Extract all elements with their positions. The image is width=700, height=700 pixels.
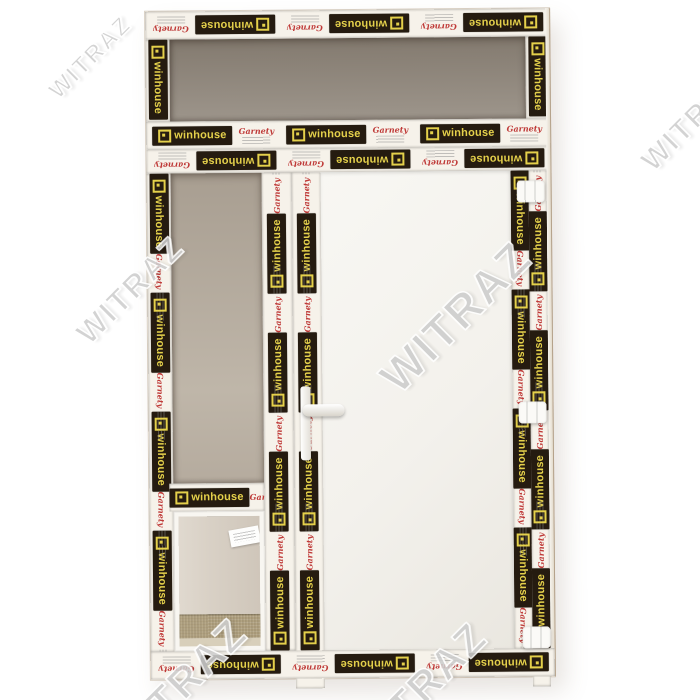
tape-segment: winhouse Garnety — [265, 531, 296, 650]
winhouse-badge: winhouse — [269, 451, 289, 531]
winhouse-label: winhouse — [274, 576, 286, 628]
tape-microtext-lines — [297, 656, 325, 663]
winhouse-logo-icon — [257, 154, 270, 167]
winhouse-badge: winhouse — [464, 149, 544, 169]
garnety-label: Garnety — [421, 24, 457, 32]
winhouse-logo-icon — [175, 491, 188, 504]
tape-segment: winhouse Garnety — [149, 412, 174, 531]
tape-gap: Garnety — [154, 153, 190, 170]
tape-gap: Garnety — [293, 656, 329, 673]
winhouse-label: winhouse — [152, 62, 164, 114]
tape-segment: winhouse Garnety — [169, 483, 264, 512]
winhouse-label: winhouse — [532, 58, 544, 110]
tape-segment: winhouse Garnety — [280, 119, 414, 148]
witraz-watermark: WITRAZ — [635, 63, 700, 178]
winhouse-logo-icon — [530, 656, 543, 669]
garnety-label: Garnety — [157, 492, 165, 528]
winhouse-label: winhouse — [515, 311, 527, 363]
tape-microtext-lines — [425, 15, 453, 22]
winhouse-label: winhouse — [340, 658, 392, 670]
winhouse-badge: winhouse — [530, 449, 550, 529]
winhouse-logo-icon — [390, 17, 403, 30]
winhouse-logo-icon — [531, 42, 544, 55]
winhouse-badge: winhouse — [330, 150, 410, 170]
garnety-label: Garnety — [303, 297, 311, 333]
garnety-label: Garnety — [276, 535, 284, 571]
tape-segment: winhouse Garnety — [146, 121, 280, 150]
winhouse-logo-icon — [256, 18, 269, 31]
winhouse-logo-icon — [534, 510, 547, 523]
protective-tape-transom-bottom: winhouse Garnety winhouse Garnety winhou… — [146, 118, 550, 150]
door-window-unit: winhouse Garnety winhouse Garnety winhou… — [145, 8, 555, 680]
tape-microtext-lines — [292, 152, 320, 159]
transom-glass — [169, 36, 526, 121]
winhouse-badge: winhouse — [150, 293, 170, 373]
tape-gap: Garnety — [288, 152, 324, 169]
tape-microtext-lines — [158, 153, 186, 160]
winhouse-logo-icon — [155, 537, 168, 550]
winhouse-badge: winhouse — [511, 289, 531, 369]
protective-tape-transom-left: winhouse — [145, 40, 170, 122]
garnety-label: Garnety — [288, 161, 324, 169]
tape-segment: winhouse Garnety — [263, 293, 294, 412]
garnety-label: Garnety — [293, 665, 329, 673]
winhouse-logo-icon — [262, 658, 275, 671]
winhouse-badge: winhouse — [270, 570, 290, 650]
winhouse-badge: winhouse — [334, 654, 414, 674]
winhouse-logo-icon — [516, 533, 529, 546]
tape-microtext-lines — [426, 151, 454, 158]
tape-microtext-lines — [376, 135, 404, 142]
winhouse-label: winhouse — [469, 16, 521, 28]
winhouse-label: winhouse — [535, 574, 547, 626]
winhouse-logo-icon — [514, 295, 527, 308]
garnety-label: Garnety — [156, 373, 164, 409]
winhouse-badge: winhouse — [529, 330, 549, 410]
tape-gap: Garnety — [422, 151, 458, 168]
product-photo: winhouse Garnety winhouse Garnety winhou… — [0, 0, 700, 700]
tape-segment: winhouse Garnety — [292, 174, 322, 293]
winhouse-badge: winhouse — [169, 487, 249, 507]
winhouse-logo-icon — [154, 418, 167, 431]
winhouse-badge: winhouse — [268, 332, 288, 412]
tape-segment: winhouse Garnety — [531, 410, 550, 529]
winhouse-label: winhouse — [517, 549, 529, 601]
winhouse-logo-icon — [272, 394, 285, 407]
door-handle-lever — [303, 404, 345, 416]
protective-tape-sidelight-mid-rail: winhouse Garnety — [169, 483, 264, 512]
tape-segment: winhouse Garnety — [415, 8, 549, 37]
protective-tape-top-rail: winhouse Garnety winhouse Garnety winhou… — [145, 8, 549, 40]
winhouse-label: winhouse — [534, 455, 546, 507]
tape-microtext-lines — [302, 172, 309, 174]
tape-segment: winhouse Garnety — [148, 293, 173, 412]
tape-segment: winhouse Garnety — [281, 9, 415, 38]
winhouse-badge: winhouse — [148, 40, 168, 120]
garnety-label: Garnety — [507, 124, 543, 132]
garnety-label: Garnety — [373, 125, 409, 133]
winhouse-logo-icon — [271, 275, 284, 288]
tape-gap: Garnety — [158, 611, 167, 652]
winhouse-badge: winhouse — [297, 213, 317, 293]
sidelight-fixed-glass — [171, 173, 265, 484]
winhouse-badge: winhouse — [152, 126, 232, 146]
winhouse-badge: winhouse — [420, 123, 500, 143]
tape-gap: Garnety — [250, 493, 265, 501]
winhouse-logo-icon — [302, 512, 315, 525]
tape-segment: winhouse Garnety — [264, 412, 295, 531]
winhouse-badge: winhouse — [152, 531, 172, 611]
winhouse-logo-icon — [300, 274, 313, 287]
garnety-label: Garnety — [422, 160, 458, 168]
garnety-label: Garnety — [305, 535, 313, 571]
garnety-label: Garnety — [517, 370, 525, 406]
winhouse-label: winhouse — [302, 457, 314, 509]
garnety-label: Garnety — [154, 162, 190, 170]
winhouse-label: winhouse — [273, 457, 285, 509]
tape-gap: Garnety — [302, 172, 311, 213]
door-handle-plate — [300, 386, 311, 460]
winhouse-badge: winhouse — [463, 13, 543, 33]
garnety-label: Garnety — [537, 532, 545, 568]
tape-gap: Garnety — [421, 15, 457, 32]
winhouse-badge: winhouse — [329, 14, 409, 34]
garnety-label: Garnety — [287, 25, 323, 33]
door-hinge-top — [517, 180, 545, 202]
tape-segment: winhouse Garnety — [512, 289, 531, 408]
protective-tape-mullion: winhouse Garnety winhouse Garnety winhou… — [262, 173, 296, 651]
tape-microtext-lines — [291, 16, 319, 23]
winhouse-logo-icon — [391, 153, 404, 166]
garnety-label: Garnety — [250, 493, 265, 501]
winhouse-label: winhouse — [301, 338, 313, 390]
tape-segment: winhouse Garnety — [295, 531, 325, 650]
winhouse-badge: winhouse — [196, 151, 276, 171]
winhouse-logo-icon — [273, 513, 286, 526]
tape-segment: winhouse Garnety — [150, 531, 175, 650]
winhouse-logo-icon — [304, 631, 317, 644]
winhouse-badge: winhouse — [286, 124, 366, 144]
winhouse-label: winhouse — [202, 155, 254, 167]
winhouse-label: winhouse — [156, 553, 168, 605]
winhouse-label: winhouse — [154, 315, 166, 367]
tape-segment: winhouse Garnety — [414, 118, 548, 147]
winhouse-badge: winhouse — [513, 527, 533, 607]
winhouse-label: winhouse — [271, 219, 283, 271]
winhouse-label: winhouse — [174, 129, 226, 141]
tape-gap: Garnety — [153, 17, 189, 34]
tape-segment: winhouse Garnety — [148, 149, 282, 174]
garnety-label: Garnety — [518, 489, 526, 525]
tape-gap: Garnety — [272, 173, 281, 214]
tape-gap: Garnety — [373, 125, 409, 142]
protective-tape-main-top-rail: winhouse Garnety winhouse Garnety winhou… — [146, 146, 550, 174]
winhouse-logo-icon — [153, 299, 166, 312]
winhouse-label: winhouse — [304, 576, 316, 628]
garnety-label: Garnety — [239, 126, 275, 134]
winhouse-logo-icon — [158, 129, 171, 142]
tape-segment: winhouse Garnety — [416, 146, 550, 171]
winhouse-logo-icon — [426, 127, 439, 140]
tape-microtext-lines — [273, 173, 280, 175]
winhouse-logo-icon — [152, 180, 165, 193]
tape-segment: winhouse Garnety — [530, 291, 549, 410]
tape-gap: Garnety — [287, 16, 323, 33]
winhouse-badge: winhouse — [528, 211, 548, 291]
winhouse-label: winhouse — [470, 152, 522, 164]
winhouse-label: winhouse — [442, 127, 494, 139]
garnety-label: Garnety — [273, 178, 281, 214]
tape-segment: winhouse Garnety — [262, 175, 293, 294]
witraz-watermark: WITRAZ — [44, 11, 138, 105]
winhouse-badge: winhouse — [299, 451, 319, 531]
winhouse-badge: winhouse — [267, 213, 287, 293]
winhouse-label: winhouse — [272, 338, 284, 390]
garnety-label: Garnety — [302, 178, 310, 214]
winhouse-label: winhouse — [155, 434, 167, 486]
tape-segment: winhouse Garnety — [147, 11, 281, 40]
winhouse-label: winhouse — [533, 336, 545, 388]
winhouse-badge: winhouse — [300, 570, 320, 650]
tape-segment: winhouse — [145, 40, 170, 120]
winhouse-logo-icon — [524, 16, 537, 29]
door-leaf — [321, 171, 515, 651]
tape-microtext-lines — [157, 17, 185, 24]
winhouse-label: winhouse — [308, 128, 360, 140]
garnety-label: Garnety — [535, 295, 543, 331]
garnety-label: Garnety — [274, 297, 282, 333]
winhouse-label: winhouse — [516, 430, 528, 482]
tape-microtext-lines — [534, 170, 541, 172]
tape-segment: winhouse Garnety — [513, 408, 532, 527]
winhouse-badge: winhouse — [151, 412, 171, 492]
winhouse-logo-icon — [292, 128, 305, 141]
door-hinge-bottom — [522, 626, 550, 648]
winhouse-logo-icon — [525, 152, 538, 165]
tape-microtext-lines — [510, 134, 538, 141]
winhouse-badge: winhouse — [195, 15, 275, 35]
winhouse-logo-icon — [151, 46, 164, 59]
door-hinge-middle — [519, 401, 547, 423]
tape-segment: winhouse Garnety — [282, 147, 416, 172]
tape-microtext-lines — [242, 136, 270, 143]
tape-gap: Garnety — [507, 124, 543, 141]
garnety-label: Garnety — [158, 611, 166, 647]
winhouse-label: winhouse — [336, 154, 388, 166]
tape-gap: Garnety — [239, 126, 275, 143]
winhouse-label: winhouse — [300, 219, 312, 271]
winhouse-logo-icon — [274, 632, 287, 645]
garnety-label: Garnety — [153, 26, 189, 34]
winhouse-label: winhouse — [201, 19, 253, 31]
winhouse-label: winhouse — [335, 18, 387, 30]
garnety-label: Garnety — [275, 416, 283, 452]
winhouse-label: winhouse — [191, 491, 243, 503]
